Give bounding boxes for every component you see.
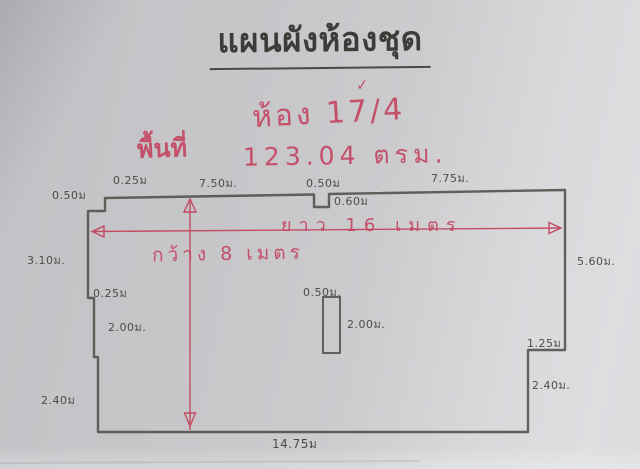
dim-label-left-wall-upper: 3.10ม.: [27, 251, 65, 269]
length-arrow: [92, 223, 561, 238]
dim-label-top-left-notch-depth: 0.50ม: [52, 186, 86, 204]
width-arrow: [184, 199, 196, 430]
dim-label-top-notch-depth: 0.60ม: [334, 192, 368, 210]
scanned-floor-plan-photo: แผนผังห้องชุด ✓ ห้อง 17/4 พื้นที่ 123.04…: [0, 0, 640, 469]
dim-label-left-wall-middle: 2.00ม.: [108, 318, 146, 336]
plan-outline: [88, 190, 565, 432]
dim-label-top-segment-right: 7.75ม.: [431, 169, 469, 187]
dim-label-left-step: 0.25ม: [93, 284, 127, 302]
dim-label-column-width: 0.50ม.: [303, 283, 341, 301]
column-rect: [323, 297, 340, 353]
dim-label-right-wall-lower: 2.40ม.: [532, 376, 570, 394]
dim-label-column-height: 2.00ม.: [347, 315, 385, 333]
dim-label-bottom-wall: 14.75ม: [272, 435, 317, 454]
dim-label-left-wall-lower: 2.40ม: [41, 391, 75, 409]
dim-label-top-left-notch-width: 0.25ม: [113, 171, 147, 189]
dim-label-right-step: 1.25ม: [527, 334, 561, 352]
dim-label-top-notch-width: 0.50ม: [306, 174, 340, 192]
dim-label-right-wall-upper: 5.60ม.: [577, 252, 615, 270]
floor-plan-drawing: [0, 0, 640, 469]
dim-label-top-segment-left: 7.50ม.: [199, 174, 237, 192]
